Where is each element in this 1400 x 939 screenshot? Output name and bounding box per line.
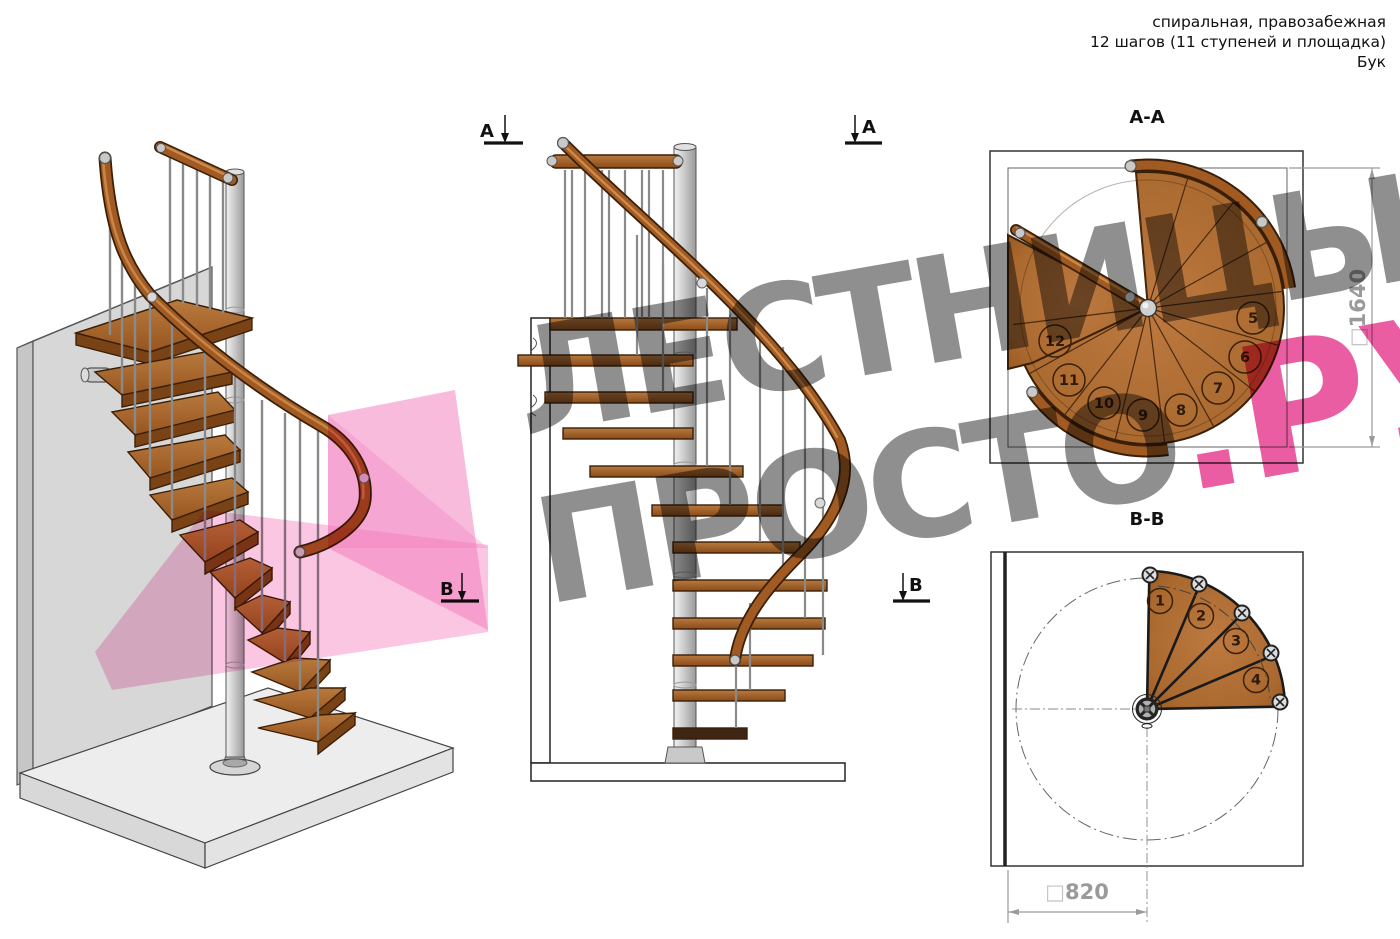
svg-text:А: А — [862, 117, 876, 138]
title-line-steps: 12 шагов (11 ступеней и площадка) — [1090, 32, 1386, 52]
steps-elevation — [518, 318, 827, 739]
bb-dimension: □820 — [1008, 870, 1147, 923]
svg-text:3: 3 — [1231, 634, 1241, 650]
section-marker-a-left: А — [480, 115, 523, 143]
title-block: спиральная, правозабежная 12 шагов (11 с… — [1090, 12, 1386, 72]
svg-text:5: 5 — [1248, 311, 1258, 327]
svg-text:□1640: □1640 — [1346, 269, 1370, 347]
svg-text:□820: □820 — [1045, 880, 1109, 904]
svg-text:4: 4 — [1251, 673, 1261, 689]
svg-text:10: 10 — [1094, 396, 1114, 412]
svg-text:9: 9 — [1138, 408, 1148, 424]
svg-text:1: 1 — [1155, 594, 1165, 610]
section-marker-b-left: В — [440, 573, 479, 601]
svg-text:В: В — [440, 579, 454, 600]
view-elevation: А А В В — [420, 95, 940, 805]
svg-text:В: В — [909, 575, 923, 596]
svg-text:А: А — [480, 121, 494, 142]
top-rail-elevation — [547, 155, 683, 168]
bb-dim-square: □ — [1045, 880, 1065, 904]
landing-rail-3d — [157, 144, 234, 184]
section-bb: В-В — [980, 495, 1400, 939]
bb-dim-value: 820 — [1065, 880, 1109, 904]
section-bb-title: В-В — [1130, 509, 1165, 530]
section-aa-title: А-А — [1129, 107, 1164, 128]
section-marker-b-right: В — [893, 573, 930, 601]
aa-dim-square: □ — [1346, 327, 1370, 347]
section-aa: А-А — [980, 95, 1400, 495]
svg-text:12: 12 — [1045, 334, 1065, 350]
svg-text:7: 7 — [1213, 381, 1223, 397]
section-marker-a-right: А — [845, 115, 882, 143]
svg-text:2: 2 — [1196, 609, 1206, 625]
svg-text:11: 11 — [1059, 373, 1079, 389]
title-line-type: спиральная, правозабежная — [1090, 12, 1386, 32]
aa-dim-value: 1640 — [1346, 269, 1370, 327]
drawing-canvas: спиральная, правозабежная 12 шагов (11 с… — [0, 0, 1400, 939]
title-line-material: Бук — [1090, 52, 1386, 72]
svg-text:6: 6 — [1240, 350, 1250, 366]
svg-text:8: 8 — [1176, 403, 1186, 419]
